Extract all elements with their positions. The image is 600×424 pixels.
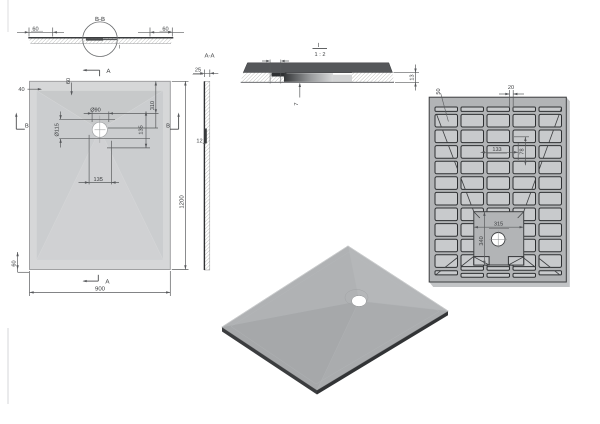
svg-text:135: 135 [139,125,145,134]
svg-text:B: B [25,123,29,129]
svg-text:133: 133 [492,147,501,153]
svg-text:Ø90: Ø90 [90,108,101,114]
svg-text:310: 310 [150,101,156,110]
svg-text:340: 340 [479,236,485,245]
svg-text:Ø115: Ø115 [55,123,61,136]
svg-text:7: 7 [294,102,300,105]
svg-text:20: 20 [508,85,514,91]
svg-text:50: 50 [436,88,442,94]
svg-text:60: 60 [162,27,168,33]
svg-text:12: 12 [196,138,202,144]
svg-text:60: 60 [66,78,72,84]
svg-text:I: I [119,45,120,51]
svg-text:A-A: A-A [204,53,214,60]
svg-text:135: 135 [94,177,103,183]
svg-text:25: 25 [195,67,201,73]
svg-text:B: B [166,123,170,129]
svg-text:B-B: B-B [95,16,105,23]
svg-text:315: 315 [494,222,503,228]
svg-text:60: 60 [32,27,38,33]
svg-text:40: 40 [18,87,24,93]
svg-text:13: 13 [410,74,416,80]
svg-text:1 : 2: 1 : 2 [315,52,326,58]
svg-text:1200: 1200 [178,195,185,209]
svg-text:900: 900 [95,286,106,293]
svg-text:78: 78 [520,148,526,154]
